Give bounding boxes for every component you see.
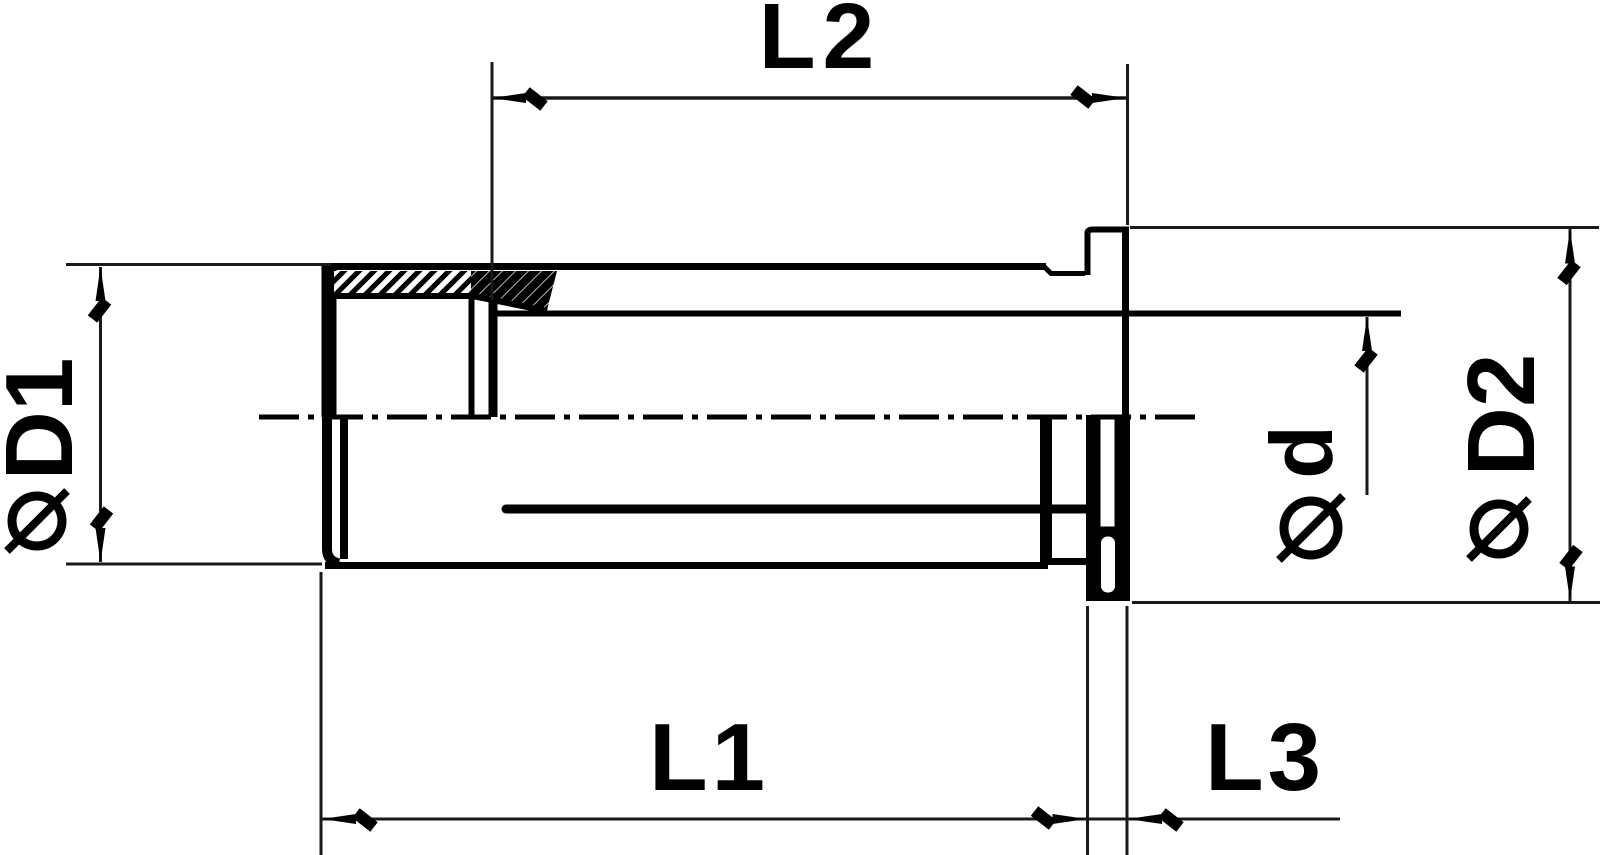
svg-text:d: d	[1252, 425, 1351, 479]
svg-text:D1: D1	[0, 358, 93, 481]
svg-text:L3: L3	[1205, 704, 1325, 811]
svg-text:D2: D2	[1448, 354, 1555, 477]
svg-text:L1: L1	[649, 704, 769, 811]
svg-text:L2: L2	[759, 0, 882, 88]
